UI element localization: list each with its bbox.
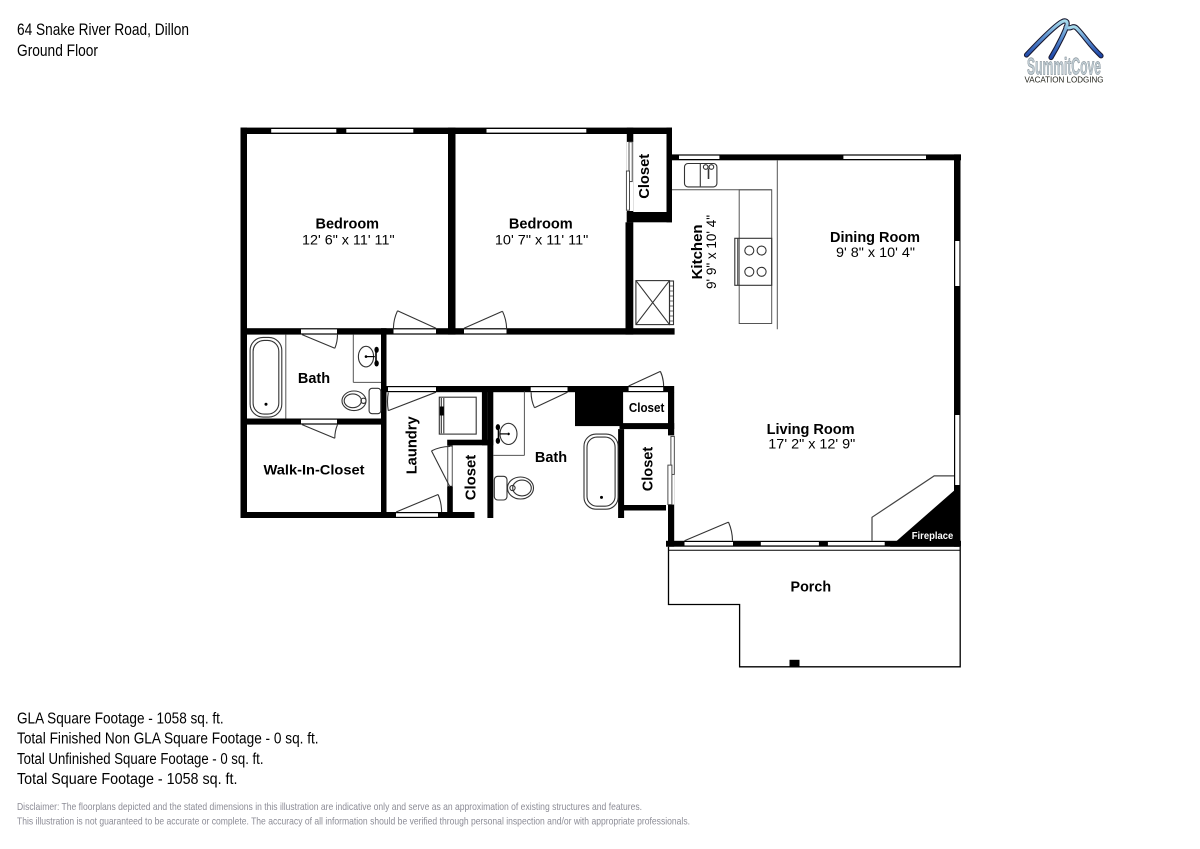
svg-text:Bedroom: Bedroom: [316, 216, 380, 233]
svg-text:Disclaimer: The floorplans dep: Disclaimer: The floorplans depicted and …: [17, 801, 642, 813]
svg-text:Closet: Closet: [640, 447, 657, 492]
svg-text:Closet: Closet: [636, 154, 653, 199]
svg-text:Total Unfinished Square Footag: Total Unfinished Square Footage - 0 sq. …: [17, 751, 264, 768]
svg-text:64 Snake River Road, Dillon: 64 Snake River Road, Dillon: [17, 21, 189, 39]
svg-text:9' 8" x 10' 4": 9' 8" x 10' 4": [836, 244, 915, 260]
svg-text:Ground Floor: Ground Floor: [17, 42, 98, 60]
svg-text:VACATION LODGING: VACATION LODGING: [1025, 75, 1104, 85]
svg-text:9' 9" x 10' 4": 9' 9" x 10' 4": [703, 215, 719, 289]
svg-text:Closet: Closet: [462, 455, 479, 501]
svg-text:This illustration is not guara: This illustration is not guaranteed to b…: [17, 816, 690, 828]
svg-text:Bedroom: Bedroom: [509, 216, 573, 233]
svg-text:Total Square Footage - 1058 sq: Total Square Footage - 1058 sq. ft.: [17, 771, 238, 788]
svg-text:Bath: Bath: [298, 371, 330, 387]
svg-text:Laundry: Laundry: [404, 416, 421, 475]
svg-text:17' 2" x 12' 9": 17' 2" x 12' 9": [768, 436, 855, 452]
svg-text:Total Finished Non GLA Square: Total Finished Non GLA Square Footage - …: [17, 731, 319, 748]
svg-text:Bath: Bath: [535, 450, 567, 466]
svg-text:12' 6" x 11' 11": 12' 6" x 11' 11": [302, 232, 395, 248]
svg-text:10' 7" x 11' 11": 10' 7" x 11' 11": [495, 232, 589, 248]
svg-text:Fireplace: Fireplace: [912, 530, 954, 542]
svg-text:Porch: Porch: [791, 579, 832, 596]
svg-text:Walk-In-Closet: Walk-In-Closet: [264, 462, 365, 478]
svg-text:GLA Square Footage - 1058 sq.: GLA Square Footage - 1058 sq. ft.: [17, 710, 224, 727]
svg-text:Closet: Closet: [629, 400, 665, 415]
